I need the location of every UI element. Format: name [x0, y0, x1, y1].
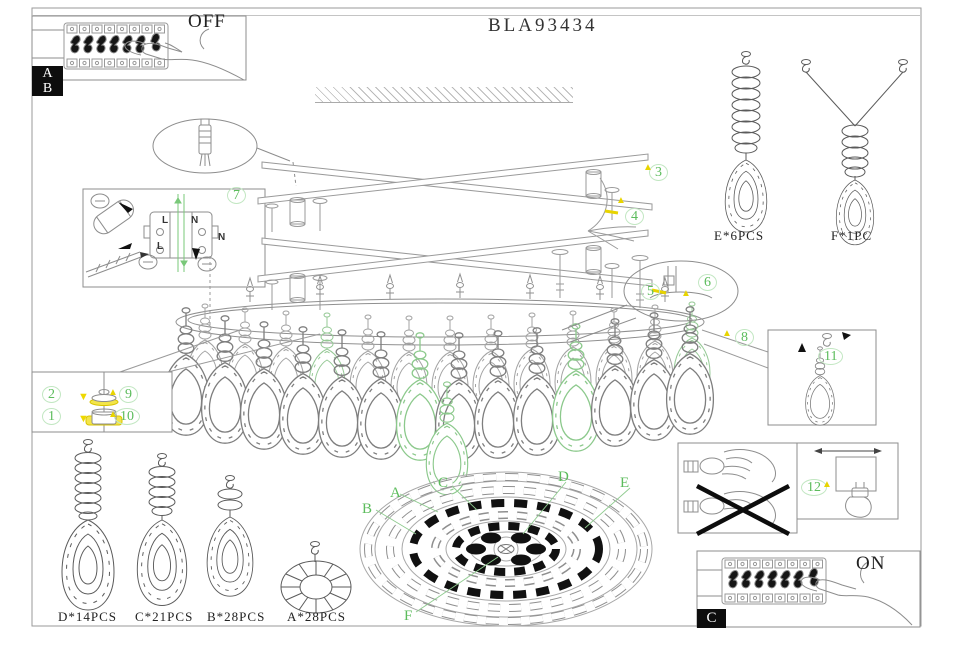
part-a-label: A*28PCS [287, 609, 346, 625]
marker-triangle-icon: ▲ [681, 289, 691, 299]
marker-triangle-icon: ▲ [722, 329, 732, 339]
off-label: OFF [188, 11, 226, 33]
marker-down-arrow-icon: ▼ [78, 392, 89, 403]
bulb-handling-box [678, 443, 797, 534]
part-d-label: D*14PCS [58, 609, 117, 625]
step-b-label: B [32, 81, 63, 96]
part-e-label: E*6PCS [714, 228, 764, 244]
step-7-badge: 7 [227, 187, 246, 204]
step-6-badge: 6 [698, 274, 717, 291]
mounting-frame-drawing [210, 154, 652, 326]
marker-triangle-icon: ▲ [643, 163, 653, 173]
terminal-l-label: L [157, 241, 163, 252]
step-ab-badge: A B [32, 66, 63, 96]
step-4-badge: 4 [625, 208, 644, 225]
plan-label-c: C [438, 475, 448, 492]
part-c-label: C*21PCS [135, 609, 193, 625]
on-panel-drawing [697, 551, 920, 627]
step-8-badge: 8 [735, 329, 754, 346]
yellow-marks [605, 211, 618, 213]
page-title: BLA93434 [488, 15, 598, 37]
step-a-label: A [32, 66, 63, 81]
chandelier-drawing [163, 274, 714, 495]
part-c-drawing [137, 454, 186, 606]
step-1-badge: 1 [42, 408, 61, 425]
marker-down-arrow-icon: ▼ [78, 414, 89, 425]
terminal-n-label: N [218, 232, 225, 243]
pendant-hanging-box [768, 330, 876, 425]
step-9-badge: 9 [119, 386, 138, 403]
ceiling-hatch [315, 87, 573, 103]
part-a-drawing [281, 542, 351, 614]
layout-plan-drawing [360, 472, 652, 626]
part-d-drawing [62, 440, 114, 611]
on-label: ON [856, 553, 885, 575]
part-f-label: F*1PC [831, 228, 872, 244]
terminal-n-label: N [191, 215, 198, 226]
plan-label-f: F [404, 608, 412, 625]
plan-label-e: E [620, 475, 629, 492]
part-f-drawing [802, 60, 908, 245]
marker-triangle-icon: ▲ [108, 388, 118, 398]
step-5-badge: 5 [641, 283, 660, 300]
step-c-badge: C [697, 609, 726, 628]
terminal-l-label: L [162, 215, 168, 226]
marker-triangle-icon: ▲ [108, 410, 118, 420]
marker-triangle-icon: ▲ [616, 196, 626, 206]
wall-anchor-callout [153, 119, 296, 186]
part-b-label: B*28PCS [207, 609, 265, 625]
step-2-badge: 2 [42, 386, 61, 403]
plan-label-a: A [390, 485, 401, 502]
part-e-drawing [725, 52, 767, 233]
part-b-drawing [207, 476, 253, 597]
instruction-sheet: BLA93434 OFF ON A B C 1 2 3 4 5 6 7 8 9 … [0, 0, 960, 647]
marker-triangle-icon: ▲ [822, 480, 832, 490]
plan-label-d: D [558, 469, 569, 486]
plan-label-b: B [362, 501, 372, 518]
